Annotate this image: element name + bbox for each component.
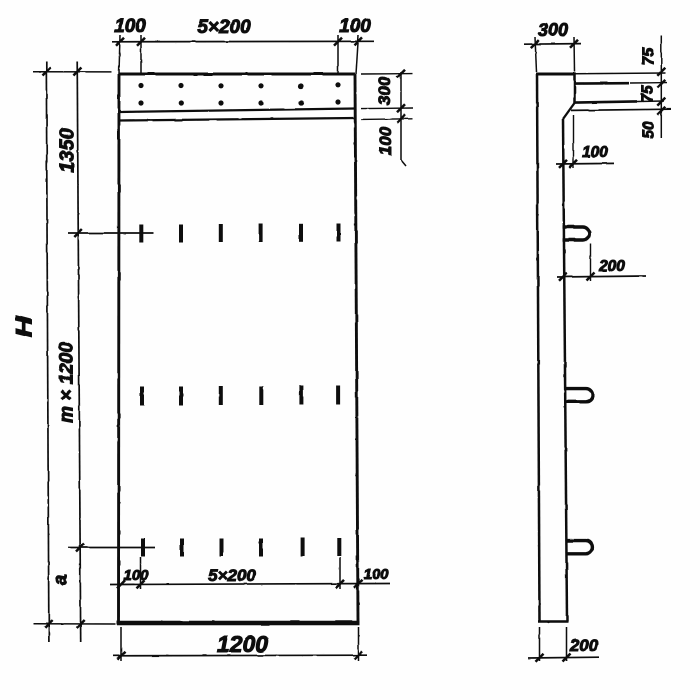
svg-text:100: 100: [363, 566, 389, 583]
svg-text:300: 300: [538, 20, 568, 40]
svg-text:200: 200: [569, 636, 599, 655]
svg-text:100: 100: [582, 144, 608, 161]
svg-text:100: 100: [114, 16, 146, 37]
svg-text:H: H: [11, 315, 36, 338]
svg-text:300: 300: [375, 76, 394, 105]
svg-text:50: 50: [641, 121, 658, 139]
svg-text:m × 1200: m × 1200: [57, 342, 78, 423]
svg-text:100: 100: [123, 567, 149, 584]
svg-text:200: 200: [598, 258, 625, 275]
svg-text:5×200: 5×200: [197, 17, 251, 38]
svg-text:75: 75: [640, 85, 657, 103]
svg-text:1200: 1200: [217, 631, 268, 657]
svg-text:100: 100: [339, 16, 371, 37]
svg-text:1350: 1350: [57, 128, 79, 173]
svg-text:75: 75: [641, 47, 658, 66]
svg-text:5×200: 5×200: [208, 566, 256, 585]
svg-text:a: a: [51, 574, 72, 585]
svg-text:100: 100: [376, 126, 395, 155]
